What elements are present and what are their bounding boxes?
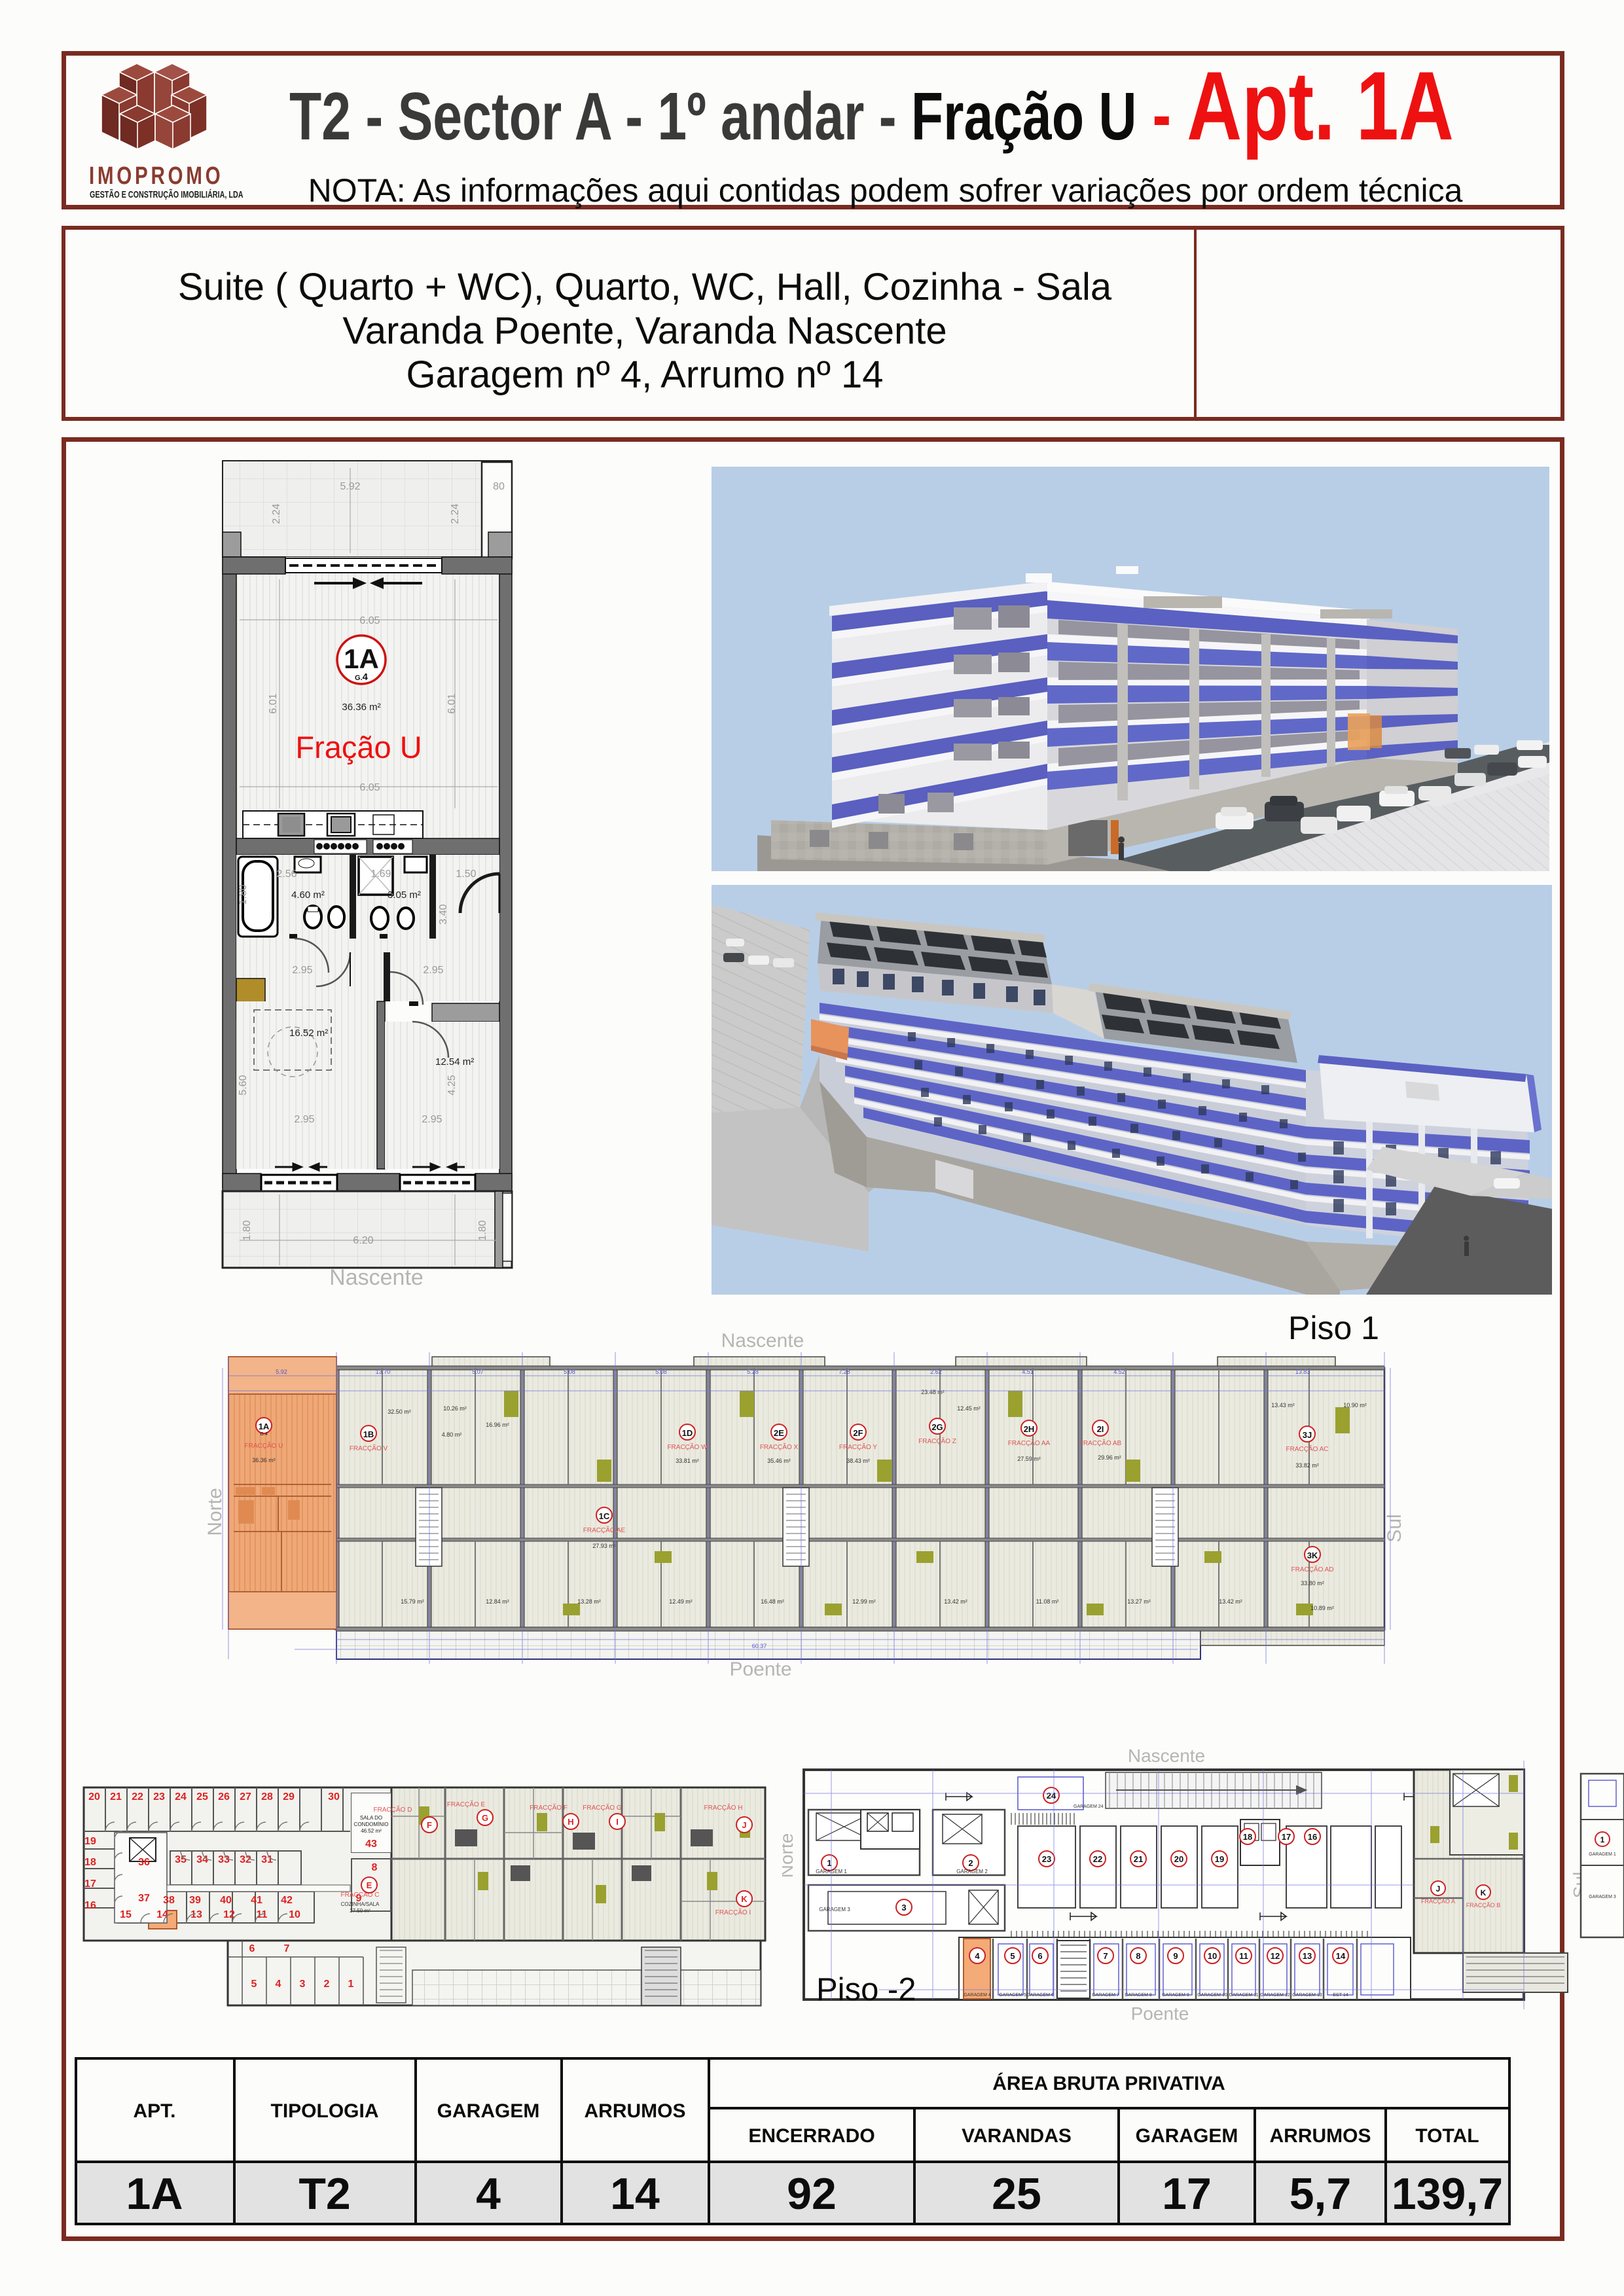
svg-text:10: 10 bbox=[1208, 1951, 1217, 1961]
svg-text:15.79 m²: 15.79 m² bbox=[401, 1598, 424, 1605]
svg-text:7: 7 bbox=[284, 1943, 290, 1954]
svg-text:FRACÇÃO Y: FRACÇÃO Y bbox=[839, 1443, 877, 1451]
svg-text:FRACÇÃO W: FRACÇÃO W bbox=[667, 1443, 708, 1451]
svg-text:30: 30 bbox=[328, 1791, 340, 1803]
svg-text:ENCERRADO: ENCERRADO bbox=[748, 2125, 875, 2147]
svg-text:2.56: 2.56 bbox=[276, 869, 297, 880]
svg-text:GARAGEM 2: GARAGEM 2 bbox=[956, 1869, 988, 1874]
svg-text:FRACÇÃO X: FRACÇÃO X bbox=[760, 1443, 799, 1451]
svg-text:GARAGEM 3: GARAGEM 3 bbox=[1589, 1895, 1616, 1899]
svg-text:15: 15 bbox=[120, 1909, 132, 1920]
svg-text:11: 11 bbox=[257, 1909, 268, 1920]
svg-text:Sul: Sul bbox=[1384, 1514, 1405, 1542]
svg-text:5.28: 5.28 bbox=[747, 1369, 759, 1375]
svg-text:6.01: 6.01 bbox=[446, 693, 458, 713]
svg-text:1.80: 1.80 bbox=[242, 1220, 253, 1240]
svg-text:19: 19 bbox=[84, 1836, 96, 1847]
svg-text:4.80 m²: 4.80 m² bbox=[442, 1431, 462, 1438]
svg-text:EST 14: EST 14 bbox=[1333, 1993, 1348, 1998]
svg-text:14: 14 bbox=[156, 1909, 168, 1920]
svg-text:4: 4 bbox=[975, 1951, 980, 1961]
svg-text:25: 25 bbox=[992, 2169, 1041, 2219]
svg-text:CONDOMÍNIO: CONDOMÍNIO bbox=[354, 1821, 389, 1827]
svg-text:24: 24 bbox=[1047, 1791, 1056, 1801]
svg-text:FRACÇÃO I: FRACÇÃO I bbox=[715, 1908, 751, 1916]
svg-text:FRACÇÃO AD: FRACÇÃO AD bbox=[1291, 1565, 1333, 1573]
svg-text:COZINHA/SALA: COZINHA/SALA bbox=[341, 1901, 380, 1907]
svg-text:32.50 m²: 32.50 m² bbox=[388, 1408, 411, 1415]
svg-text:18: 18 bbox=[84, 1857, 96, 1868]
svg-text:9: 9 bbox=[1173, 1951, 1178, 1961]
svg-text:16: 16 bbox=[1308, 1832, 1317, 1842]
svg-text:1.80: 1.80 bbox=[238, 884, 249, 905]
svg-text:36: 36 bbox=[138, 1857, 150, 1868]
svg-text:12.84 m²: 12.84 m² bbox=[486, 1598, 509, 1605]
svg-text:3J: 3J bbox=[1303, 1430, 1312, 1440]
svg-text:16.48 m²: 16.48 m² bbox=[761, 1598, 784, 1605]
svg-text:1A: 1A bbox=[259, 1422, 270, 1431]
svg-text:33: 33 bbox=[218, 1854, 230, 1865]
svg-text:2: 2 bbox=[324, 1979, 330, 1990]
svg-text:27: 27 bbox=[240, 1791, 251, 1803]
svg-text:27.93 m²: 27.93 m² bbox=[592, 1543, 616, 1549]
svg-text:4: 4 bbox=[276, 1979, 281, 1990]
svg-text:GARAGEM 3: GARAGEM 3 bbox=[819, 1907, 850, 1912]
svg-text:FRACÇÃO U: FRACÇÃO U bbox=[245, 1441, 283, 1450]
svg-text:2.95: 2.95 bbox=[294, 1114, 314, 1125]
svg-text:13: 13 bbox=[1303, 1951, 1312, 1961]
svg-text:ARRUMOS: ARRUMOS bbox=[1270, 2125, 1371, 2147]
svg-text:GARAGEM 1: GARAGEM 1 bbox=[1589, 1852, 1616, 1857]
svg-text:GARAGEM 24: GARAGEM 24 bbox=[1074, 1804, 1104, 1809]
svg-text:13.28 m²: 13.28 m² bbox=[577, 1598, 601, 1605]
svg-text:13.83: 13.83 bbox=[1295, 1369, 1310, 1375]
svg-text:20: 20 bbox=[1174, 1854, 1183, 1864]
svg-text:SALA DO: SALA DO bbox=[360, 1815, 382, 1821]
svg-text:12.45 m²: 12.45 m² bbox=[957, 1405, 981, 1412]
svg-text:13.42 m²: 13.42 m² bbox=[944, 1598, 967, 1605]
svg-text:33.82 m²: 33.82 m² bbox=[1295, 1462, 1319, 1469]
svg-text:1C: 1C bbox=[599, 1511, 610, 1521]
svg-text:23.48 m²: 23.48 m² bbox=[921, 1389, 945, 1395]
svg-text:3K: 3K bbox=[1307, 1551, 1318, 1560]
svg-text:Norte: Norte bbox=[782, 1833, 797, 1878]
svg-text:4.60 m²: 4.60 m² bbox=[291, 889, 325, 901]
svg-text:5.92: 5.92 bbox=[276, 1369, 287, 1375]
svg-text:Nascente: Nascente bbox=[1128, 1746, 1205, 1766]
svg-text:4.52: 4.52 bbox=[1113, 1369, 1125, 1375]
svg-text:22: 22 bbox=[1093, 1854, 1102, 1864]
svg-text:2E: 2E bbox=[774, 1428, 784, 1438]
svg-text:26: 26 bbox=[218, 1791, 230, 1803]
svg-text:TOTAL: TOTAL bbox=[1415, 2125, 1479, 2147]
svg-text:24: 24 bbox=[175, 1791, 187, 1803]
svg-text:K: K bbox=[1481, 1888, 1487, 1897]
svg-text:16.52 m²: 16.52 m² bbox=[289, 1028, 328, 1039]
svg-text:FRACÇÃO B: FRACÇÃO B bbox=[1466, 1902, 1501, 1909]
svg-text:5.08: 5.08 bbox=[655, 1369, 667, 1375]
svg-text:FRACÇÃO D: FRACÇÃO D bbox=[374, 1805, 412, 1814]
svg-text:3.05 m²: 3.05 m² bbox=[388, 889, 421, 901]
svg-text:5: 5 bbox=[1010, 1951, 1015, 1961]
svg-text:20: 20 bbox=[88, 1791, 100, 1803]
svg-text:25: 25 bbox=[196, 1791, 208, 1803]
svg-text:13.27 m²: 13.27 m² bbox=[1127, 1598, 1151, 1605]
svg-text:29: 29 bbox=[283, 1791, 295, 1803]
svg-text:GARAGEM: GARAGEM bbox=[1136, 2125, 1238, 2147]
svg-text:1.50: 1.50 bbox=[456, 869, 476, 880]
svg-text:40: 40 bbox=[220, 1895, 232, 1906]
svg-text:14: 14 bbox=[610, 2169, 660, 2219]
svg-text:4.51: 4.51 bbox=[1022, 1369, 1034, 1375]
svg-text:1B: 1B bbox=[363, 1429, 374, 1439]
svg-text:6: 6 bbox=[249, 1943, 255, 1954]
svg-text:K: K bbox=[741, 1894, 748, 1904]
svg-text:GARAGEM 8: GARAGEM 8 bbox=[1125, 1993, 1152, 1998]
svg-text:GARAGEM 12: GARAGEM 12 bbox=[1260, 1993, 1290, 1998]
svg-text:14: 14 bbox=[1336, 1951, 1346, 1961]
svg-text:1.80: 1.80 bbox=[477, 1220, 488, 1240]
svg-text:46.52 m²: 46.52 m² bbox=[361, 1828, 382, 1834]
svg-text:Nascente: Nascente bbox=[721, 1330, 804, 1352]
svg-text:FRACÇÃO AE: FRACÇÃO AE bbox=[583, 1526, 626, 1534]
svg-text:GARAGEM 9: GARAGEM 9 bbox=[1162, 1993, 1189, 1998]
svg-text:7.28: 7.28 bbox=[839, 1369, 850, 1375]
svg-text:Poente: Poente bbox=[729, 1659, 791, 1679]
svg-text:8: 8 bbox=[372, 1862, 378, 1873]
svg-text:FRACÇÃO A: FRACÇÃO A bbox=[1421, 1898, 1455, 1905]
svg-text:6.05: 6.05 bbox=[359, 782, 380, 793]
svg-text:41: 41 bbox=[251, 1895, 262, 1906]
svg-text:VARANDAS: VARANDAS bbox=[962, 2125, 1072, 2147]
svg-text:GARAGEM 6: GARAGEM 6 bbox=[1026, 1993, 1054, 1998]
svg-text:10.90 m²: 10.90 m² bbox=[1343, 1402, 1367, 1408]
svg-text:8: 8 bbox=[1136, 1951, 1140, 1961]
svg-text:2I: 2I bbox=[1097, 1424, 1104, 1434]
svg-text:FRACÇÃO V: FRACÇÃO V bbox=[350, 1444, 388, 1452]
svg-text:22: 22 bbox=[132, 1791, 143, 1803]
svg-text:80: 80 bbox=[493, 481, 505, 492]
svg-text:2H: 2H bbox=[1024, 1424, 1035, 1434]
svg-text:2G: 2G bbox=[931, 1422, 943, 1432]
svg-text:4: 4 bbox=[476, 2169, 501, 2219]
svg-text:39: 39 bbox=[189, 1895, 201, 1906]
svg-text:5.92: 5.92 bbox=[340, 481, 360, 492]
svg-text:GARAGEM 4: GARAGEM 4 bbox=[964, 1993, 991, 1998]
svg-text:6: 6 bbox=[1038, 1951, 1042, 1961]
svg-text:J: J bbox=[742, 1820, 746, 1830]
svg-text:37: 37 bbox=[138, 1893, 150, 1904]
svg-text:GARAGEM 5: GARAGEM 5 bbox=[999, 1993, 1026, 1998]
svg-text:2.62: 2.62 bbox=[930, 1369, 942, 1375]
svg-text:H: H bbox=[568, 1817, 573, 1827]
svg-text:27.50 m²: 27.50 m² bbox=[350, 1908, 370, 1914]
svg-text:FRACÇÃO AA: FRACÇÃO AA bbox=[1008, 1439, 1051, 1447]
svg-text:23: 23 bbox=[1042, 1854, 1051, 1864]
svg-text:FRACÇÃO AB: FRACÇÃO AB bbox=[1079, 1439, 1122, 1447]
svg-text:FRACÇÃO AC: FRACÇÃO AC bbox=[1286, 1444, 1328, 1453]
svg-text:19: 19 bbox=[1215, 1854, 1224, 1864]
svg-text:5.07: 5.07 bbox=[472, 1369, 484, 1375]
svg-text:G.4: G.4 bbox=[260, 1432, 267, 1437]
svg-text:16.96 m²: 16.96 m² bbox=[486, 1422, 509, 1428]
svg-text:10.89 m²: 10.89 m² bbox=[1310, 1605, 1334, 1611]
svg-text:5.08: 5.08 bbox=[564, 1369, 575, 1375]
svg-text:Poente: Poente bbox=[1131, 2003, 1189, 2022]
svg-text:TIPOLOGIA: TIPOLOGIA bbox=[271, 2100, 379, 2122]
svg-text:FRACÇÃO H: FRACÇÃO H bbox=[704, 1803, 743, 1812]
svg-text:33.80 m²: 33.80 m² bbox=[1301, 1580, 1324, 1587]
svg-text:28: 28 bbox=[261, 1791, 273, 1803]
svg-text:10.26 m²: 10.26 m² bbox=[443, 1405, 467, 1412]
svg-text:1A: 1A bbox=[344, 643, 379, 674]
svg-text:7: 7 bbox=[1103, 1951, 1108, 1961]
svg-text:2.24: 2.24 bbox=[450, 503, 461, 524]
svg-text:ARRUMOS: ARRUMOS bbox=[585, 2100, 686, 2122]
svg-text:21: 21 bbox=[1134, 1854, 1143, 1864]
svg-text:6.01: 6.01 bbox=[268, 693, 279, 713]
svg-text:GARAGEM: GARAGEM bbox=[437, 2100, 540, 2122]
svg-text:29.96 m²: 29.96 m² bbox=[1098, 1454, 1121, 1461]
svg-text:4.25: 4.25 bbox=[446, 1075, 458, 1095]
svg-text:18: 18 bbox=[1243, 1832, 1252, 1842]
svg-text:2.95: 2.95 bbox=[422, 1114, 442, 1125]
svg-text:34: 34 bbox=[196, 1854, 208, 1865]
svg-text:F: F bbox=[427, 1820, 432, 1830]
svg-text:GARAGEM 7: GARAGEM 7 bbox=[1092, 1993, 1119, 1998]
svg-text:12.49 m²: 12.49 m² bbox=[669, 1598, 693, 1605]
svg-text:J: J bbox=[1436, 1884, 1441, 1893]
svg-text:13.70: 13.70 bbox=[376, 1369, 391, 1375]
svg-text:60.37: 60.37 bbox=[752, 1643, 767, 1649]
svg-text:ÁREA BRUTA PRIVATIVA: ÁREA BRUTA PRIVATIVA bbox=[992, 2072, 1225, 2094]
svg-text:10: 10 bbox=[289, 1909, 300, 1920]
svg-text:Fração U: Fração U bbox=[295, 730, 422, 764]
svg-text:12.54 m²: 12.54 m² bbox=[435, 1056, 474, 1067]
svg-text:17: 17 bbox=[1282, 1832, 1291, 1842]
svg-text:G: G bbox=[482, 1813, 488, 1823]
svg-text:3: 3 bbox=[300, 1979, 306, 1990]
svg-text:35: 35 bbox=[175, 1854, 187, 1865]
svg-text:1.69: 1.69 bbox=[370, 869, 391, 880]
svg-text:38: 38 bbox=[163, 1895, 175, 1906]
svg-text:36.36 m²: 36.36 m² bbox=[252, 1457, 276, 1463]
svg-text:12.99 m²: 12.99 m² bbox=[852, 1598, 876, 1605]
svg-text:17: 17 bbox=[1162, 2169, 1212, 2219]
svg-text:APT.: APT. bbox=[133, 2100, 175, 2122]
svg-text:31: 31 bbox=[261, 1854, 273, 1865]
svg-text:17: 17 bbox=[84, 1878, 96, 1890]
svg-text:2: 2 bbox=[968, 1858, 973, 1868]
svg-text:5: 5 bbox=[251, 1979, 257, 1990]
svg-text:5.60: 5.60 bbox=[238, 1075, 249, 1095]
svg-text:FRACÇÃO E: FRACÇÃO E bbox=[447, 1800, 486, 1808]
svg-text:33.81 m²: 33.81 m² bbox=[676, 1458, 699, 1464]
svg-text:139,7: 139,7 bbox=[1392, 2169, 1503, 2219]
svg-text:T2: T2 bbox=[298, 2169, 350, 2219]
svg-text:42: 42 bbox=[281, 1895, 293, 1906]
svg-text:3.40: 3.40 bbox=[438, 904, 449, 924]
svg-text:GARAGEM 11: GARAGEM 11 bbox=[1229, 1993, 1259, 1998]
svg-text:21: 21 bbox=[110, 1791, 122, 1803]
svg-text:FRACÇÃO F: FRACÇÃO F bbox=[530, 1803, 568, 1812]
svg-text:32: 32 bbox=[240, 1854, 251, 1865]
svg-text:36.36 m²: 36.36 m² bbox=[342, 702, 380, 713]
svg-text:1A: 1A bbox=[126, 2169, 183, 2219]
svg-text:92: 92 bbox=[787, 2169, 837, 2219]
svg-text:1D: 1D bbox=[682, 1428, 693, 1438]
svg-text:1: 1 bbox=[348, 1979, 354, 1990]
svg-text:11.08 m²: 11.08 m² bbox=[1036, 1598, 1059, 1605]
svg-text:23: 23 bbox=[153, 1791, 165, 1803]
svg-text:E: E bbox=[367, 1880, 372, 1890]
svg-text:13.42 m²: 13.42 m² bbox=[1219, 1598, 1242, 1605]
svg-text:GARAGEM 13: GARAGEM 13 bbox=[1292, 1993, 1322, 1998]
svg-text:38.43 m²: 38.43 m² bbox=[846, 1458, 870, 1464]
svg-text:2F: 2F bbox=[853, 1428, 863, 1438]
svg-text:43: 43 bbox=[365, 1839, 377, 1850]
svg-text:16: 16 bbox=[84, 1900, 96, 1911]
svg-text:6.05: 6.05 bbox=[359, 615, 380, 626]
svg-text:Nascente: Nascente bbox=[329, 1265, 424, 1290]
svg-text:5,7: 5,7 bbox=[1290, 2169, 1352, 2219]
svg-text:FRACÇÃO Z: FRACÇÃO Z bbox=[918, 1437, 956, 1445]
svg-text:2.95: 2.95 bbox=[292, 965, 312, 976]
svg-text:FRACÇÃO G: FRACÇÃO G bbox=[583, 1803, 622, 1812]
svg-text:2.24: 2.24 bbox=[271, 503, 282, 524]
svg-text:12: 12 bbox=[1271, 1951, 1280, 1961]
svg-text:11: 11 bbox=[1239, 1951, 1248, 1961]
svg-text:1: 1 bbox=[1600, 1835, 1605, 1844]
svg-text:2.95: 2.95 bbox=[423, 965, 443, 976]
svg-text:13.43 m²: 13.43 m² bbox=[1271, 1402, 1295, 1408]
svg-text:3: 3 bbox=[901, 1903, 906, 1912]
svg-text:6.20: 6.20 bbox=[353, 1235, 373, 1246]
svg-text:27.59 m²: 27.59 m² bbox=[1017, 1456, 1041, 1462]
svg-text:35.46 m²: 35.46 m² bbox=[767, 1458, 791, 1464]
svg-text:I: I bbox=[616, 1817, 619, 1827]
svg-text:GARAGEM 10: GARAGEM 10 bbox=[1197, 1993, 1227, 1998]
